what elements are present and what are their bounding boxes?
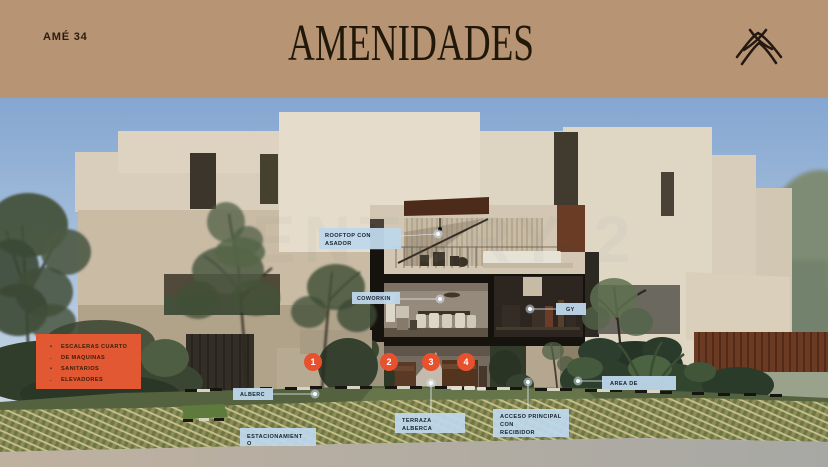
svg-text:ELEVADORES: ELEVADORES xyxy=(61,377,103,383)
svg-text:ESTACIONAMIENT: ESTACIONAMIENT xyxy=(247,434,303,440)
svg-text:AREA DE: AREA DE xyxy=(610,381,638,387)
svg-text:.: . xyxy=(50,355,52,361)
svg-text:ALBERC: ALBERC xyxy=(240,392,265,398)
svg-text:ENTURY 2: ENTURY 2 xyxy=(252,202,639,276)
svg-text:.: . xyxy=(50,377,52,383)
svg-text:DE MAQUINAS: DE MAQUINAS xyxy=(61,355,105,361)
svg-text:SANITARIOS: SANITARIOS xyxy=(61,366,99,372)
svg-text:CON: CON xyxy=(500,422,514,428)
svg-text:ALBERCA: ALBERCA xyxy=(402,426,432,432)
svg-text:ACCESO PRINCIPAL: ACCESO PRINCIPAL xyxy=(500,414,562,420)
svg-text:2: 2 xyxy=(386,357,391,367)
svg-text:GY: GY xyxy=(566,307,575,313)
svg-text:ROOFTOP CON: ROOFTOP CON xyxy=(325,233,371,239)
svg-text:3: 3 xyxy=(428,357,433,367)
svg-text:•: • xyxy=(50,344,52,350)
svg-text:1: 1 xyxy=(310,357,315,367)
svg-text:ESCALERAS CUARTO: ESCALERAS CUARTO xyxy=(61,344,128,350)
svg-text:COWORKIN: COWORKIN xyxy=(357,296,391,302)
svg-text:RECIBIDOR: RECIBIDOR xyxy=(500,430,535,436)
svg-text:TERRAZA: TERRAZA xyxy=(402,418,432,424)
svg-text:4: 4 xyxy=(463,357,468,367)
svg-text:O: O xyxy=(247,441,252,447)
svg-text:ASADOR: ASADOR xyxy=(325,241,352,247)
svg-text:•: • xyxy=(50,366,52,372)
svg-text:AMÉ 34: AMÉ 34 xyxy=(43,30,88,43)
svg-text:AMENIDADES: AMENIDADES xyxy=(288,15,534,72)
